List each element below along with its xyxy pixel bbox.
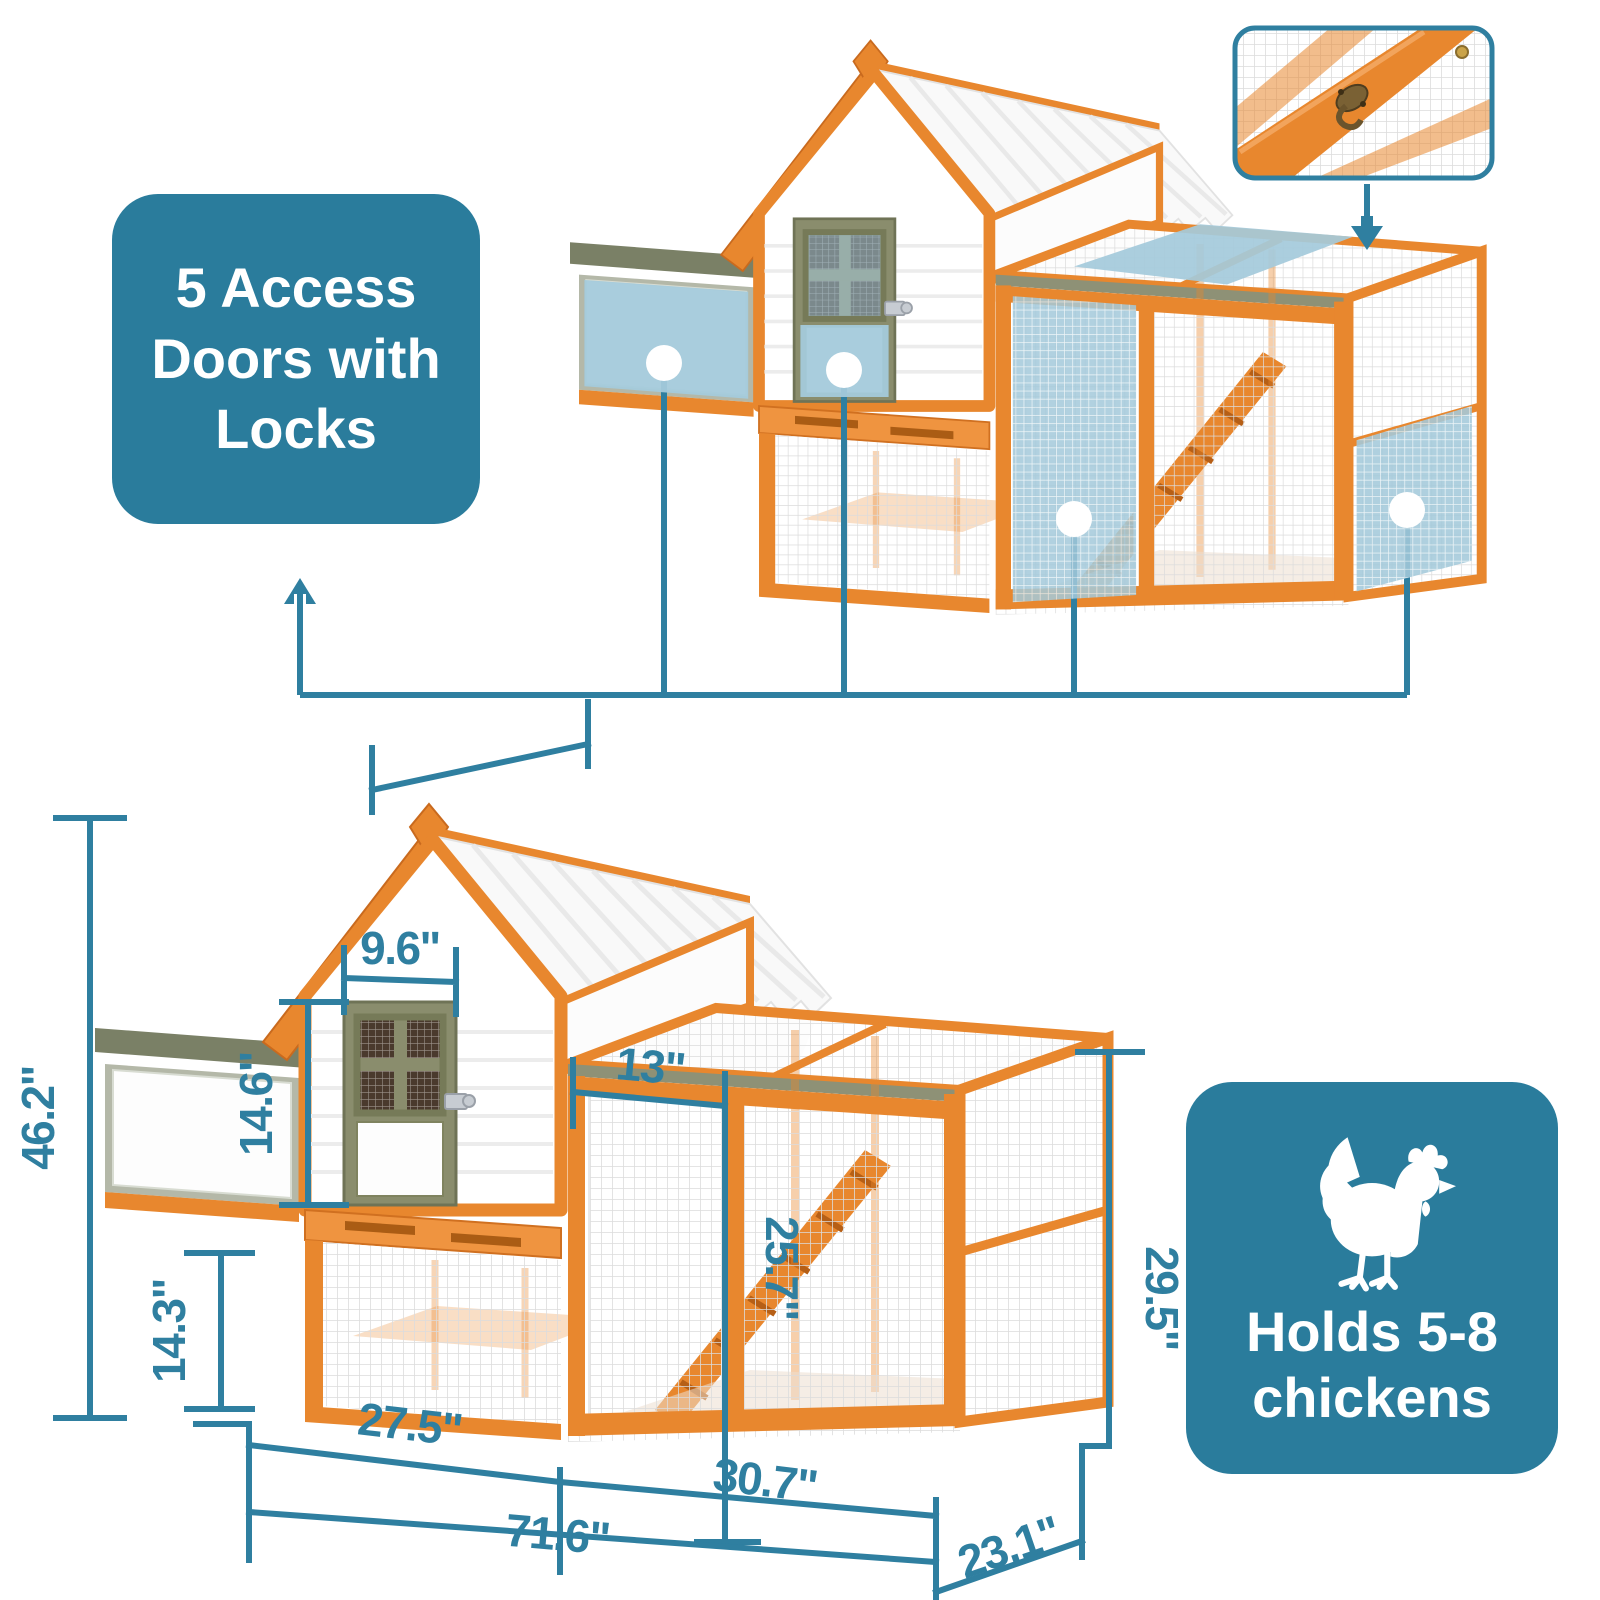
capacity-label: Holds 5-8 chickens — [1212, 1299, 1532, 1431]
door-marker-dot — [1056, 501, 1092, 537]
dimension-label: 14.3" — [143, 1279, 195, 1383]
access-doors-label: 5 Access Doors with Locks — [140, 253, 452, 465]
nest-box-door-highlight — [584, 280, 748, 399]
door-marker-dot — [1389, 492, 1425, 528]
dimension-label: 27.5" — [355, 1392, 464, 1455]
dimension-label: 9.6" — [360, 922, 440, 974]
dimension-label: 13" — [614, 1037, 687, 1095]
screw-icon — [1456, 46, 1468, 58]
infographic-page: 46.2" 9.6" 14.6" 14.3" 13" — [0, 0, 1600, 1600]
access-doors-callout: 5 Access Doors with Locks — [112, 194, 480, 524]
capacity-callout: Holds 5-8 chickens — [1186, 1082, 1558, 1474]
house-door-window-highlight — [809, 235, 881, 316]
dimension-label: 23.1" — [951, 1505, 1066, 1588]
dimension-label: 25.7" — [756, 1216, 808, 1320]
door-marker-dot — [826, 352, 862, 388]
dimension-ridge-width — [372, 702, 588, 812]
door-marker-dot — [646, 345, 682, 381]
dimension-label: 29.5" — [1136, 1246, 1188, 1350]
dimension-total-width: 71.6" — [249, 1504, 936, 1565]
dimension-depth: 23.1" — [936, 1446, 1109, 1592]
dimension-base-height: 14.3" — [143, 1253, 252, 1560]
dimension-label: 14.6" — [230, 1052, 282, 1156]
dimension-label: 71.6" — [503, 1504, 611, 1565]
dimension-label: 46.2" — [12, 1066, 64, 1170]
chicken-icon — [1277, 1125, 1467, 1293]
lock-closeup-inset — [1235, 28, 1492, 250]
